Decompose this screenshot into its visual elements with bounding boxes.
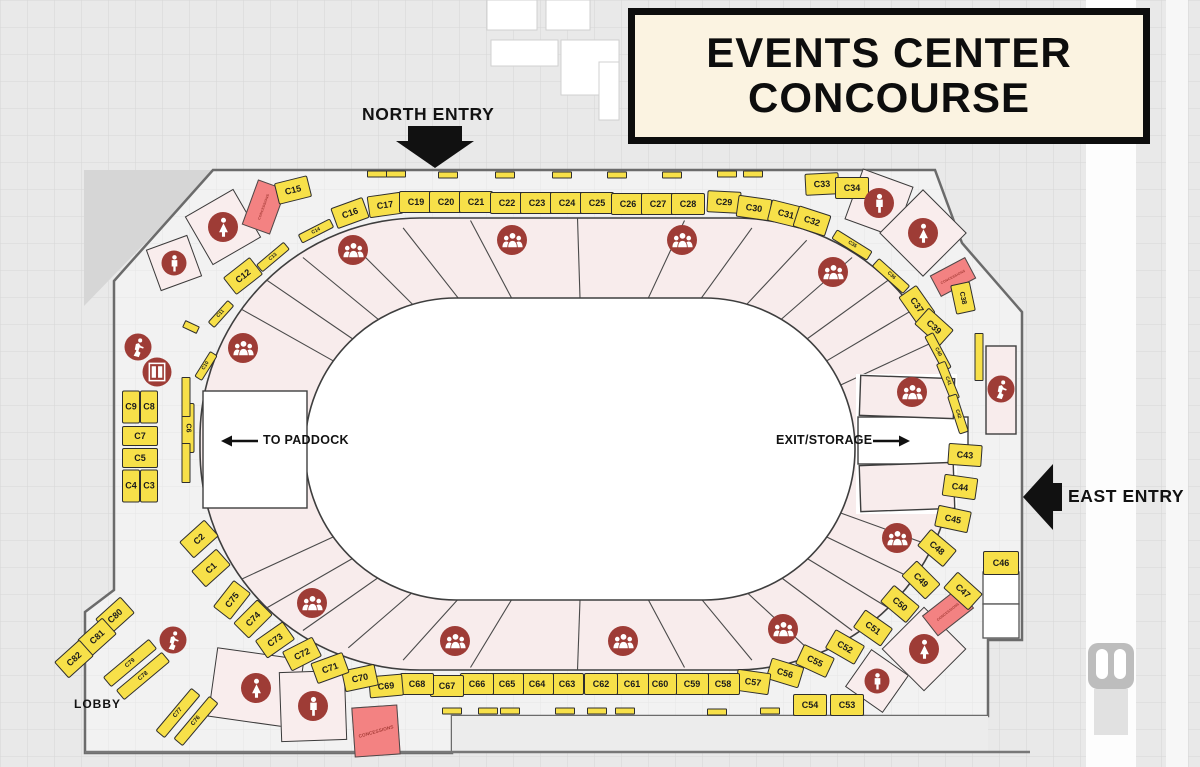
booth-C48: C48 <box>917 529 957 568</box>
booth-C42: C42 <box>947 393 969 434</box>
booth-C11: C11 <box>208 300 235 328</box>
male-restroom-icon <box>298 691 328 721</box>
crowd-icon-glyph <box>671 229 694 252</box>
booth-C5: C5 <box>122 448 158 468</box>
male-restroom-icon-glyph <box>302 695 325 718</box>
crowd-icon-glyph <box>822 261 845 284</box>
crowd-icon-glyph <box>886 527 909 550</box>
crowd-icon-glyph <box>444 630 467 653</box>
crowd-icon <box>897 377 927 407</box>
mini-booth <box>367 171 387 178</box>
booth-C49: C49 <box>901 560 941 600</box>
booth-C13: C13 <box>256 242 290 273</box>
booth-C35: C35 <box>831 229 872 261</box>
booth-C57: C57 <box>735 669 772 696</box>
booth-C21: C21 <box>459 191 493 213</box>
mini-booth <box>500 708 520 715</box>
male-restroom-icon <box>864 188 894 218</box>
booth-C24: C24 <box>550 192 584 214</box>
booth-C20: C20 <box>429 191 463 213</box>
crowd-icon-glyph <box>501 229 524 252</box>
mini-booth <box>478 708 498 715</box>
female-restroom-icon <box>241 673 271 703</box>
booth-C22: C22 <box>490 192 524 214</box>
male-restroom-icon-glyph <box>867 671 887 691</box>
mini-booth <box>707 709 727 716</box>
crowd-icon <box>497 225 527 255</box>
mini-booth <box>760 708 780 715</box>
male-restroom-icon-glyph <box>868 192 891 215</box>
booth-C46: C46 <box>983 551 1019 575</box>
crowd-icon <box>228 333 258 363</box>
crowd-icon-glyph <box>612 630 635 653</box>
concession-stand: CONCESSIONS <box>351 704 400 757</box>
stairs-icon-glyph <box>163 630 184 651</box>
crowd-icon-glyph <box>301 592 324 615</box>
booth-C9: C9 <box>122 391 140 424</box>
booth-C38: C38 <box>950 281 976 315</box>
booth-C59: C59 <box>675 673 709 695</box>
booth-C15: C15 <box>274 175 312 205</box>
stairs-icon <box>125 334 152 361</box>
booth-C3: C3 <box>140 470 158 503</box>
stairs-icon-glyph <box>991 379 1012 400</box>
booth-C25: C25 <box>580 192 614 214</box>
booth-C36: C36 <box>872 258 911 294</box>
mini-booth <box>182 443 191 483</box>
male-restroom-icon-glyph <box>164 253 184 273</box>
booth-C32: C32 <box>792 205 831 236</box>
booth-C65: C65 <box>490 673 524 695</box>
concession-label: CONCESSIONS <box>936 602 960 622</box>
crowd-icon-glyph <box>772 618 795 641</box>
crowd-icon <box>338 235 368 265</box>
booth-C19: C19 <box>399 191 433 213</box>
crowd-icon-glyph <box>901 381 924 404</box>
mini-booth <box>182 377 191 417</box>
mini-booth <box>438 172 458 179</box>
mini-booth <box>555 708 575 715</box>
booth-C53: C53 <box>830 694 864 716</box>
booth-C44: C44 <box>942 474 979 501</box>
crowd-icon <box>768 614 798 644</box>
female-restroom-icon-glyph <box>912 222 935 245</box>
female-restroom-icon <box>908 218 938 248</box>
crowd-icon <box>667 225 697 255</box>
booth-C64: C64 <box>520 673 554 695</box>
mini-booth <box>607 172 627 179</box>
female-restroom-icon <box>909 634 939 664</box>
crowd-icon-glyph <box>342 239 365 262</box>
booth-C67: C67 <box>430 675 464 697</box>
concession-label: CONCESSIONS <box>358 724 394 739</box>
crowd-icon <box>440 626 470 656</box>
booth-C43: C43 <box>947 443 982 467</box>
mini-booth <box>442 708 462 715</box>
stairs-icon-glyph <box>128 337 149 358</box>
crowd-icon <box>297 588 327 618</box>
booth-C14: C14 <box>298 218 335 243</box>
booth-C27: C27 <box>641 193 675 215</box>
booth-C4: C4 <box>122 470 140 503</box>
booth-C61: C61 <box>615 673 649 695</box>
mini-booth <box>386 171 406 178</box>
mini-booth <box>495 172 515 179</box>
mini-booth <box>587 708 607 715</box>
crowd-icon <box>608 626 638 656</box>
crowd-icon-glyph <box>232 337 255 360</box>
booth-C7: C7 <box>122 426 158 446</box>
booth-C10: C10 <box>194 351 218 381</box>
female-restroom-icon <box>208 212 238 242</box>
booth-C8: C8 <box>140 391 158 424</box>
booth-C23: C23 <box>520 192 554 214</box>
booth-C63: C63 <box>550 673 584 695</box>
mini-booth <box>552 172 572 179</box>
venue-map: CONCESSIONSCONCESSIONSCONCESSIONSCONCESS… <box>0 0 1200 767</box>
female-restroom-icon-glyph <box>212 216 235 239</box>
stairs-icon <box>160 627 187 654</box>
booth-C45: C45 <box>934 505 972 534</box>
mini-booth <box>717 171 737 178</box>
booth-C51: C51 <box>853 609 893 647</box>
stairs-icon <box>988 376 1015 403</box>
mini-booth <box>975 333 984 381</box>
booth-C62: C62 <box>584 673 618 695</box>
booth-C16: C16 <box>330 197 369 229</box>
booth-C34: C34 <box>835 177 869 199</box>
booth-C54: C54 <box>793 694 827 716</box>
mini-booth <box>662 172 682 179</box>
male-restroom-icon <box>865 669 890 694</box>
booth-C28: C28 <box>671 193 705 215</box>
booth-layer: CONCESSIONSCONCESSIONSCONCESSIONSCONCESS… <box>0 0 1200 767</box>
booth-C66: C66 <box>460 673 494 695</box>
booth-C26: C26 <box>611 193 645 215</box>
booth-C58: C58 <box>706 673 740 695</box>
mini-booth <box>743 171 763 178</box>
booth-C68: C68 <box>400 673 434 695</box>
male-restroom-icon <box>162 251 187 276</box>
mini-booth <box>615 708 635 715</box>
mini-booth <box>182 320 200 334</box>
female-restroom-icon-glyph <box>913 638 936 661</box>
elevator-icon-glyph <box>146 361 169 384</box>
elevator-icon <box>143 358 172 387</box>
booth-C17: C17 <box>367 192 404 219</box>
female-restroom-icon-glyph <box>245 677 268 700</box>
crowd-icon <box>882 523 912 553</box>
crowd-icon <box>818 257 848 287</box>
concession-label: CONCESSIONS <box>257 194 270 221</box>
